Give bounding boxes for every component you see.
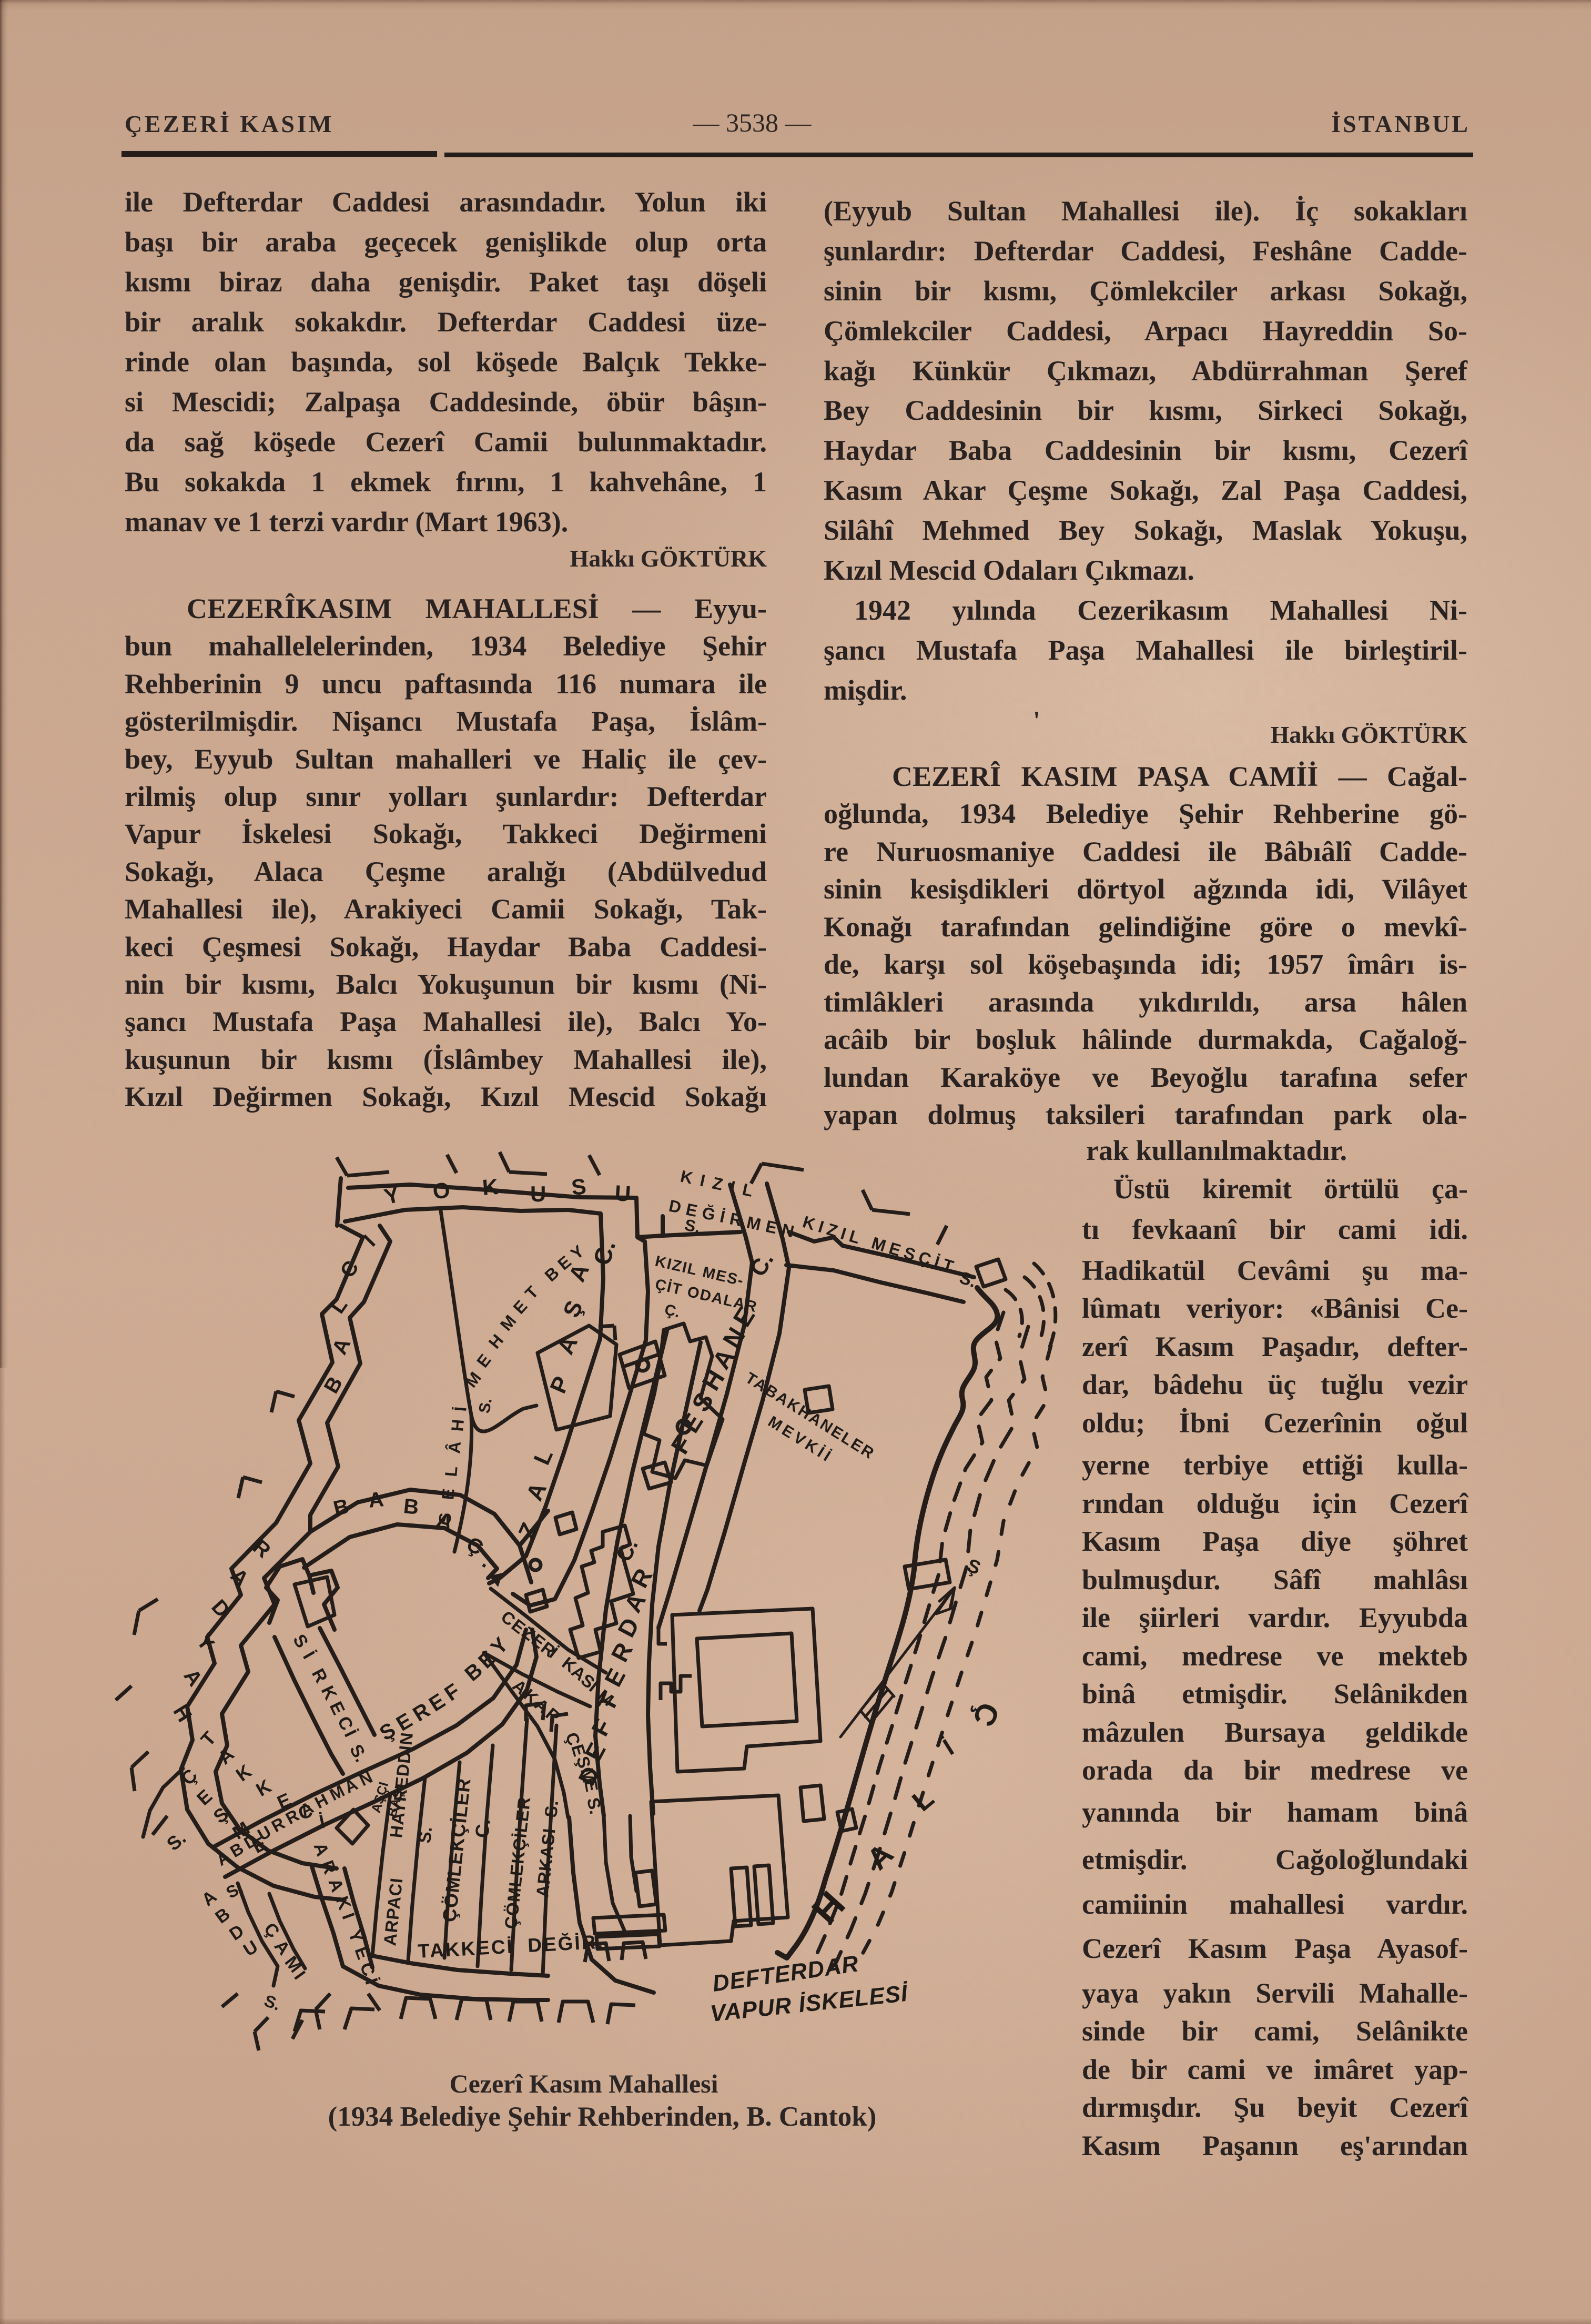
svg-text:ÇÖMLEKÇİLER: ÇÖMLEKÇİLER: [438, 1777, 475, 1923]
svg-text:Ş: Ş: [570, 1174, 587, 1200]
svg-text:S.: S.: [475, 1397, 495, 1415]
svg-text:İ: İ: [299, 1648, 319, 1662]
svg-text:İ: İ: [451, 1406, 470, 1412]
svg-text:E: E: [438, 1488, 458, 1500]
svg-text:U: U: [530, 1181, 546, 1206]
svg-text:ÇÖMLEKÇİLER: ÇÖMLEKÇİLER: [501, 1795, 534, 1929]
svg-text:R: R: [248, 1535, 275, 1562]
svg-text:A: A: [309, 1840, 332, 1859]
svg-text:M: M: [496, 1311, 520, 1335]
svg-text:T: T: [521, 1282, 542, 1302]
svg-text:A: A: [619, 1589, 651, 1617]
svg-text:S.: S.: [163, 1827, 190, 1855]
svg-text:ARPACI: ARPACI: [380, 1877, 406, 1947]
svg-text:Ç: Ç: [463, 1532, 487, 1560]
svg-text:E: E: [473, 1350, 495, 1371]
svg-text:R: R: [317, 1858, 340, 1877]
svg-text:L: L: [441, 1466, 461, 1478]
svg-text:K: K: [252, 1775, 275, 1801]
svg-text:S.: S.: [346, 1741, 371, 1765]
svg-text:B: B: [402, 1494, 420, 1519]
svg-text:A: A: [179, 1665, 207, 1691]
svg-text:C.: C.: [588, 1237, 621, 1268]
svg-text:C: C: [336, 1257, 363, 1282]
svg-text:E: E: [326, 1699, 349, 1718]
svg-text:L: L: [906, 1782, 940, 1817]
svg-text:A: A: [198, 1886, 221, 1910]
svg-text:O: O: [431, 1177, 452, 1204]
svg-text:H: H: [448, 1418, 468, 1432]
svg-text:A: A: [324, 1876, 347, 1895]
svg-text:H: H: [485, 1331, 507, 1352]
svg-text:Ç.: Ç.: [663, 1301, 681, 1321]
svg-text:K: K: [317, 1683, 341, 1703]
svg-text:P: P: [545, 1372, 575, 1397]
svg-text:N: N: [356, 1767, 376, 1790]
svg-text:R: R: [308, 1665, 331, 1686]
svg-text:Ş: Ş: [964, 1554, 984, 1579]
svg-text:İ: İ: [338, 1911, 358, 1922]
svg-text:KIZIL: KIZIL: [679, 1167, 763, 1202]
svg-text:B: B: [211, 1904, 234, 1927]
svg-text:Ş: Ş: [558, 1297, 588, 1321]
svg-text:K: K: [481, 1174, 499, 1200]
svg-text:U: U: [614, 1180, 632, 1206]
svg-text:S.: S.: [262, 1991, 283, 2014]
svg-text:K: K: [331, 1894, 354, 1913]
svg-text:H: H: [168, 1701, 196, 1726]
svg-text:Ç: Ç: [966, 1697, 1007, 1732]
svg-text:ARKASI S.: ARKASI S.: [532, 1799, 562, 1898]
svg-text:Y: Y: [192, 1630, 219, 1655]
svg-text:S: S: [435, 1512, 455, 1524]
svg-text:İ: İ: [938, 1734, 958, 1761]
svg-text:A: A: [367, 1488, 384, 1512]
svg-text:D: D: [612, 1613, 645, 1642]
svg-text:C.: C.: [471, 1818, 494, 1839]
svg-text:S.: S.: [414, 1826, 435, 1844]
svg-text:R: R: [605, 1638, 638, 1666]
svg-text:S: S: [289, 1631, 312, 1651]
svg-text:Y: Y: [567, 1241, 587, 1264]
svg-text:E: E: [192, 1785, 216, 1810]
svg-text:Â: Â: [444, 1440, 464, 1454]
svg-text:D: D: [207, 1595, 234, 1622]
svg-text:A: A: [860, 1836, 900, 1876]
svg-text:L: L: [529, 1446, 558, 1469]
svg-text:E: E: [509, 1297, 531, 1318]
svg-text:F: F: [586, 1714, 617, 1740]
svg-text:T: T: [196, 1727, 220, 1751]
svg-text:E: E: [599, 1664, 631, 1691]
